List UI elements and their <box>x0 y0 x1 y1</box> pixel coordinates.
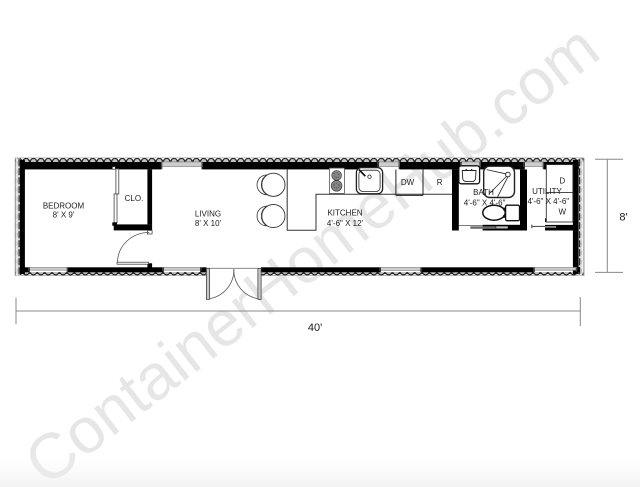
svg-text:UTILITY: UTILITY <box>532 187 562 196</box>
svg-text:DW: DW <box>401 178 415 187</box>
svg-text:8' X 9': 8' X 9' <box>53 211 75 220</box>
svg-text:8' X 10': 8' X 10' <box>195 219 222 228</box>
svg-text:8': 8' <box>619 211 627 223</box>
svg-text:4'-6" X 4'-6": 4'-6" X 4'-6" <box>464 198 506 207</box>
svg-text:D: D <box>559 177 565 186</box>
svg-text:R: R <box>437 178 443 187</box>
svg-text:ContainerHomeHub.com: ContainerHomeHub.com <box>11 10 612 487</box>
svg-text:4'-6" X 12': 4'-6" X 12' <box>327 219 364 228</box>
svg-text:4'-6" X 4'-6": 4'-6" X 4'-6" <box>527 197 569 206</box>
svg-text:LIVING: LIVING <box>195 209 221 218</box>
svg-text:BEDROOM: BEDROOM <box>43 201 85 210</box>
svg-text:KITCHEN: KITCHEN <box>327 208 362 217</box>
svg-text:CLO.: CLO. <box>125 194 144 203</box>
svg-text:40': 40' <box>308 322 322 334</box>
svg-text:W: W <box>559 207 567 216</box>
svg-text:BATH: BATH <box>473 188 494 197</box>
